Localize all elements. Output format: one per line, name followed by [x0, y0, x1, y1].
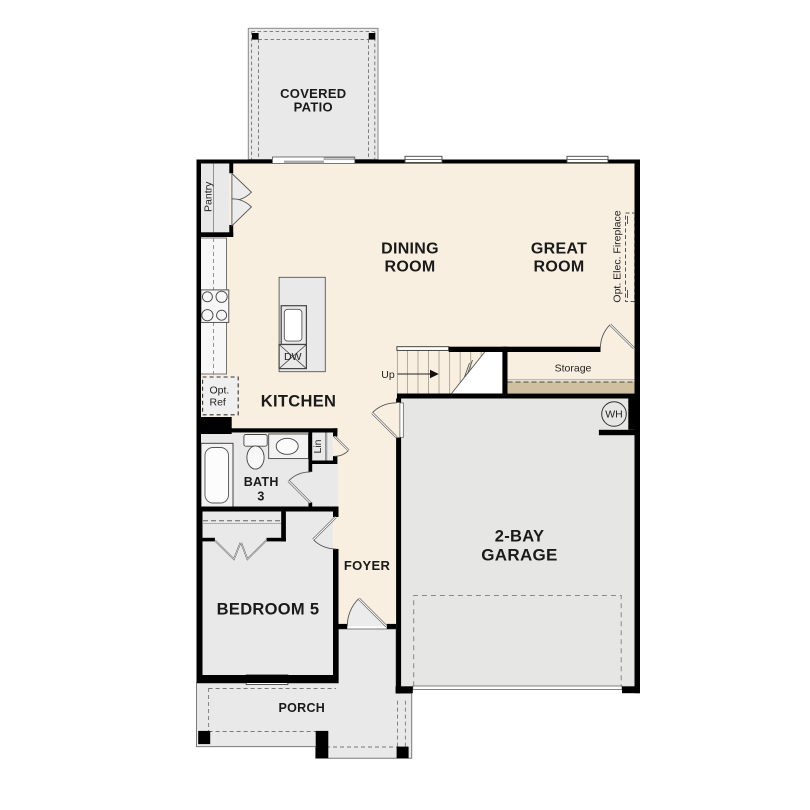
- svg-text:Opt. Elec. Fireplace: Opt. Elec. Fireplace: [611, 210, 623, 302]
- svg-text:Storage: Storage: [555, 363, 592, 375]
- svg-text:KITCHEN: KITCHEN: [261, 392, 336, 410]
- svg-text:COVERED: COVERED: [280, 86, 346, 101]
- svg-text:GREAT: GREAT: [531, 240, 587, 257]
- svg-text:ROOM: ROOM: [534, 259, 585, 276]
- svg-text:BEDROOM 5: BEDROOM 5: [217, 601, 320, 619]
- svg-text:DW: DW: [284, 351, 302, 363]
- svg-text:2-BAY: 2-BAY: [495, 527, 545, 545]
- svg-text:WH: WH: [605, 409, 623, 421]
- svg-text:PORCH: PORCH: [278, 701, 325, 715]
- svg-text:PATIO: PATIO: [294, 100, 333, 115]
- svg-text:FOYER: FOYER: [344, 558, 391, 573]
- svg-text:BATH: BATH: [244, 475, 279, 489]
- svg-text:Up: Up: [381, 369, 395, 381]
- svg-text:Opt.: Opt.: [210, 385, 230, 397]
- svg-text:ROOM: ROOM: [385, 259, 436, 276]
- svg-text:3: 3: [257, 489, 264, 503]
- svg-text:Pantry: Pantry: [203, 181, 215, 212]
- svg-text:Ref: Ref: [210, 397, 226, 409]
- svg-text:Lin: Lin: [312, 439, 324, 453]
- svg-text:GARAGE: GARAGE: [481, 545, 557, 564]
- svg-text:DINING: DINING: [381, 240, 439, 257]
